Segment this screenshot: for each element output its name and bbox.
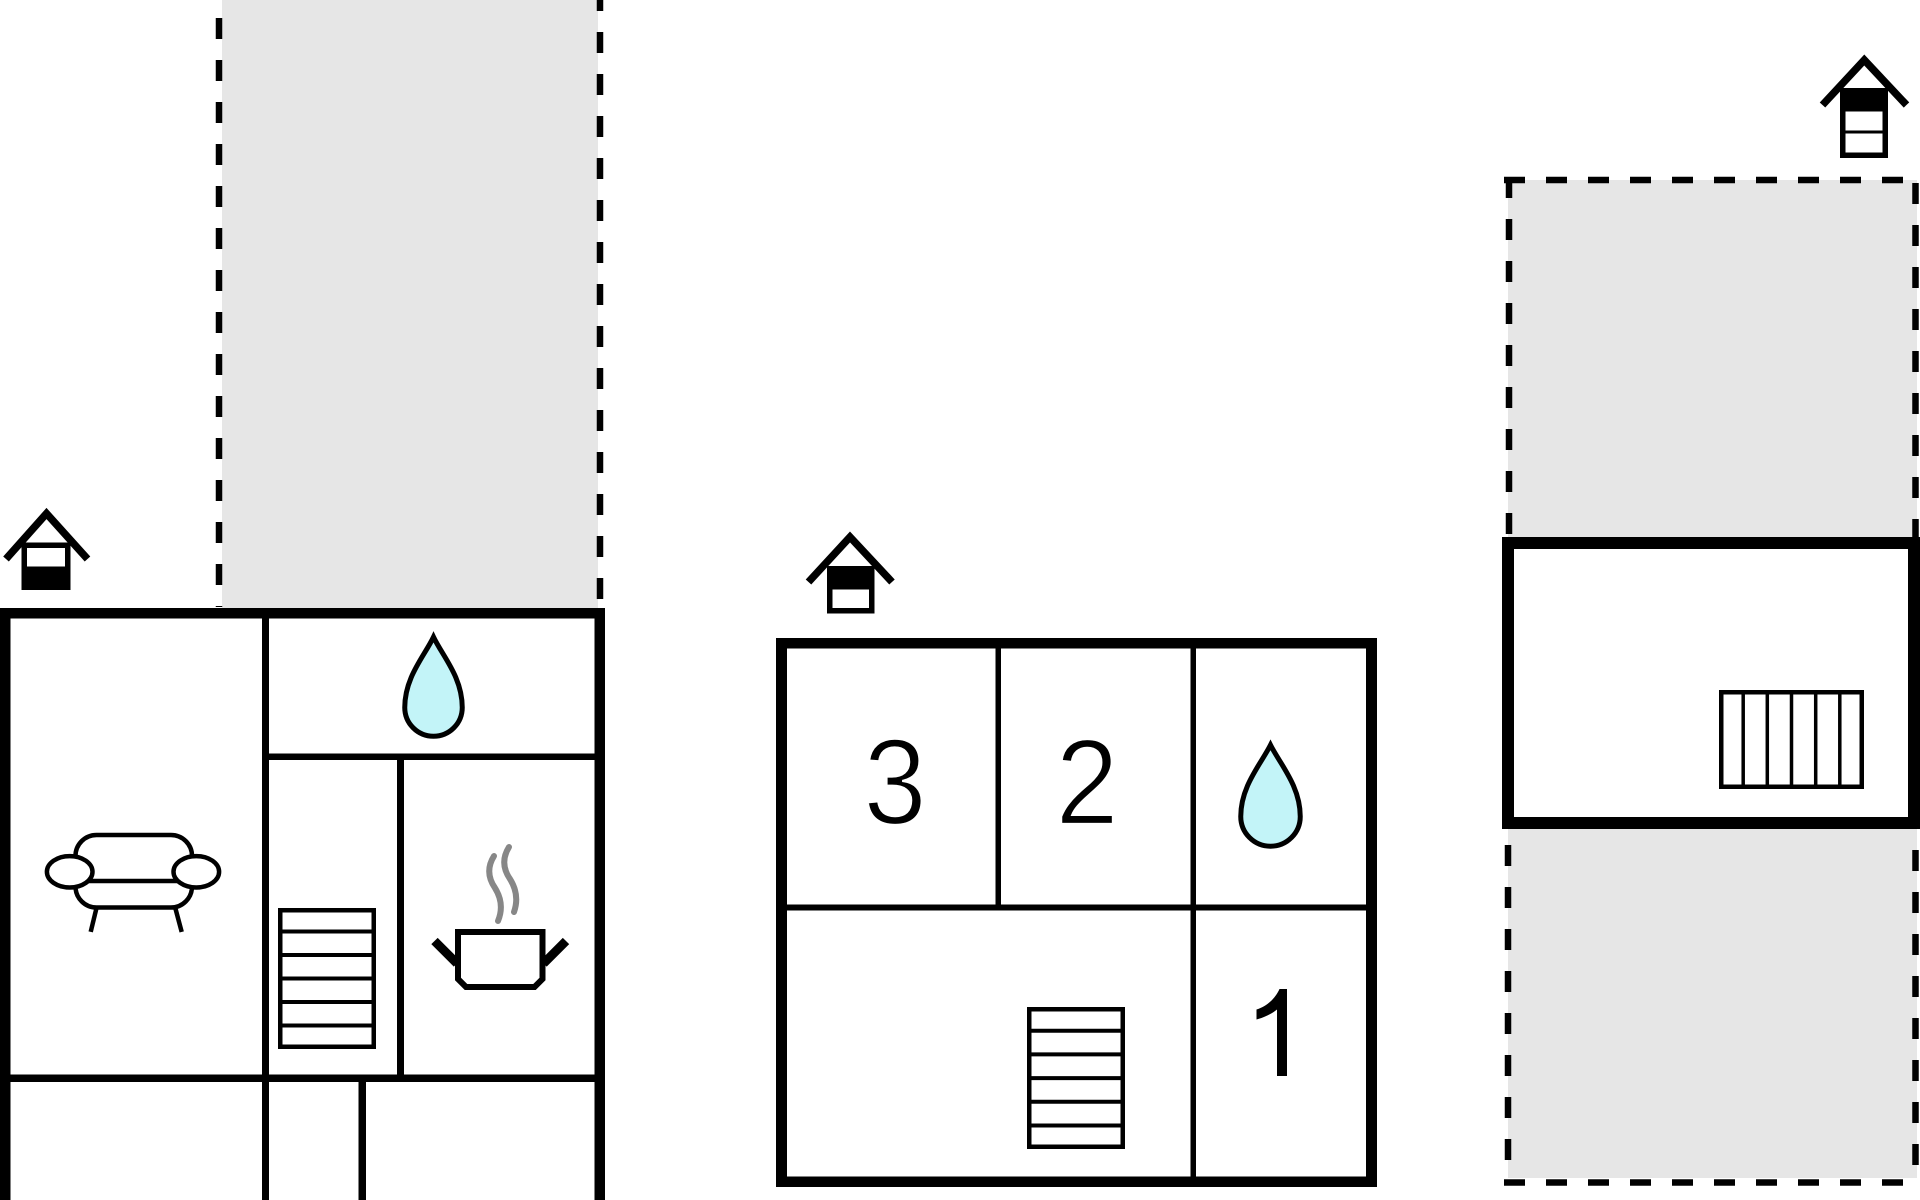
svg-text:2: 2 (1055, 713, 1118, 850)
svg-text:3: 3 (863, 713, 926, 850)
